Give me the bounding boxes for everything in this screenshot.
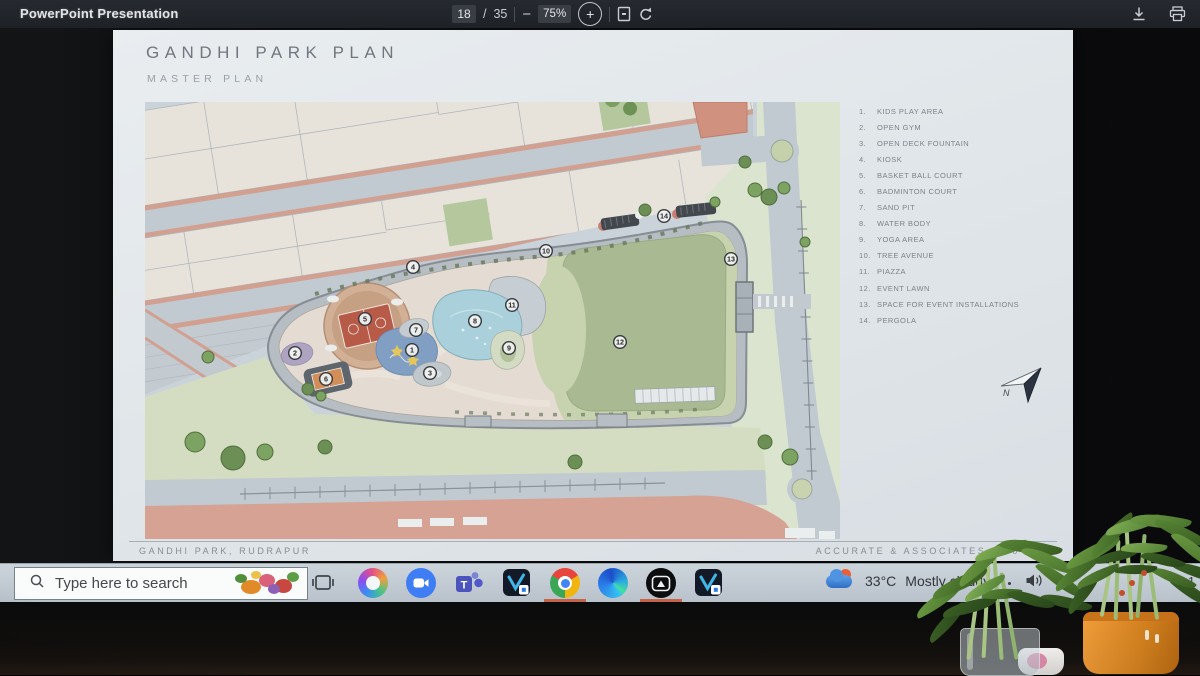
- taskbar-app-capture[interactable]: [637, 568, 685, 598]
- legend-item-4: 4.KIOSK: [859, 151, 1019, 167]
- stem-node: [1119, 590, 1125, 596]
- toolbar-divider: [609, 7, 610, 22]
- taskbar-app-pinned-dev-2[interactable]: [685, 568, 733, 598]
- capture-app-icon: [646, 568, 676, 598]
- legend-label: SAND PIT: [877, 203, 915, 212]
- legend-number: 5.: [859, 171, 877, 180]
- photo-of-monitor: { "viewer_toolbar": { "title": "PowerPoi…: [0, 0, 1200, 675]
- plan-marker-number: 3: [428, 369, 432, 378]
- legend-label: TREE AVENUE: [877, 251, 934, 260]
- plan-marker-number: 12: [616, 338, 624, 347]
- plan-marker-number: 4: [411, 263, 415, 272]
- legend-label: KIOSK: [877, 155, 902, 164]
- search-highlight-flowers[interactable]: [235, 570, 305, 597]
- legend-number: 2.: [859, 123, 877, 132]
- legend-label: YOGA AREA: [877, 235, 924, 244]
- stem-node: [1141, 570, 1147, 576]
- pinned-apps: T: [349, 568, 733, 598]
- plan-marker-number: 7: [414, 326, 418, 335]
- legend-number: 3.: [859, 139, 877, 148]
- page-number-field[interactable]: 18: [452, 5, 476, 23]
- copilot-icon: [358, 568, 388, 598]
- legend-item-13: 13.SPACE FOR EVENT INSTALLATIONS: [859, 296, 1019, 312]
- legend-label: PERGOLA: [877, 316, 916, 325]
- capture-active-indicator: [640, 599, 682, 602]
- taskbar-app-pinned-dev-1[interactable]: [493, 568, 541, 598]
- legend-number: 7.: [859, 203, 877, 212]
- orange-pot: [1083, 612, 1179, 674]
- legend-item-7: 7.SAND PIT: [859, 200, 1019, 216]
- legend-number: 12.: [859, 284, 877, 293]
- chrome-active-indicator: [544, 599, 586, 602]
- plan-marker-number: 13: [727, 255, 735, 264]
- slide-title: GANDHI PARK PLAN: [146, 43, 399, 63]
- stem-node: [1129, 580, 1135, 586]
- legend-number: 10.: [859, 251, 877, 260]
- taskbar-app-copilot[interactable]: [349, 568, 397, 598]
- plan-marker-number: 5: [363, 315, 367, 324]
- zoom-in-button[interactable]: +: [578, 2, 602, 26]
- legend-number: 4.: [859, 155, 877, 164]
- legend-item-12: 12.EVENT LAWN: [859, 280, 1019, 296]
- toolbar-divider: [514, 7, 515, 22]
- chrome-icon: [550, 568, 580, 598]
- plan-marker-number: 14: [660, 212, 668, 221]
- plan-marker-number: 9: [507, 344, 511, 353]
- zoom-level[interactable]: 75%: [538, 5, 571, 23]
- fit-page-icon[interactable]: [617, 6, 631, 22]
- plan-marker-number: 1: [410, 346, 414, 355]
- north-label: N: [1003, 388, 1010, 398]
- legend-label: KIDS PLAY AREA: [877, 107, 943, 116]
- pinned-dev-app-icon: [502, 568, 532, 598]
- legend-number: 1.: [859, 107, 877, 116]
- legend-number: 9.: [859, 235, 877, 244]
- slide-page-18: GANDHI PARK PLAN MASTER PLAN: [113, 30, 1073, 561]
- legend-number: 13.: [859, 300, 877, 309]
- rotate-icon[interactable]: [638, 6, 654, 22]
- legend-item-10: 10.TREE AVENUE: [859, 248, 1019, 264]
- north-arrow: N: [997, 362, 1047, 408]
- legend-item-11: 11.PIAZZA: [859, 264, 1019, 280]
- park-plan-map: 1234567891011121314: [145, 102, 840, 539]
- legend-item-8: 8.WATER BODY: [859, 216, 1019, 232]
- plan-marker-number: 2: [293, 349, 297, 358]
- legend-number: 14.: [859, 316, 877, 325]
- legend-label: OPEN DECK FOUNTAIN: [877, 139, 969, 148]
- edge-icon: [598, 568, 628, 598]
- pinned-dev-app-icon: [694, 568, 724, 598]
- legend-label: OPEN GYM: [877, 123, 921, 132]
- task-view-button[interactable]: [312, 573, 334, 593]
- legend-label: BADMINTON COURT: [877, 187, 957, 196]
- zoom-out-button[interactable]: −: [522, 7, 531, 22]
- search-input[interactable]: Type here to search: [14, 567, 308, 600]
- legend-number: 11.: [859, 267, 877, 276]
- search-placeholder: Type here to search: [55, 575, 188, 592]
- document-title: PowerPoint Presentation: [20, 6, 178, 21]
- taskbar-app-chrome[interactable]: [541, 568, 589, 598]
- legend-item-5: 5.BASKET BALL COURT: [859, 167, 1019, 183]
- toolbar-right-actions: [1131, 0, 1200, 28]
- legend-item-3: 3.OPEN DECK FOUNTAIN: [859, 135, 1019, 151]
- legend-item-14: 14.PERGOLA: [859, 312, 1019, 328]
- legend-label: EVENT LAWN: [877, 284, 930, 293]
- weather-temperature: 33°C: [865, 573, 896, 589]
- page-total: 35: [493, 7, 507, 21]
- legend-label: BASKET BALL COURT: [877, 171, 963, 180]
- taskbar-app-edge[interactable]: [589, 568, 637, 598]
- page-separator: /: [483, 7, 486, 21]
- legend-item-9: 9.YOGA AREA: [859, 232, 1019, 248]
- plan-marker-number: 6: [324, 375, 328, 384]
- legend-item-2: 2.OPEN GYM: [859, 119, 1019, 135]
- legend-label: WATER BODY: [877, 219, 931, 228]
- taskbar-app-zoom[interactable]: [397, 568, 445, 598]
- footer-project-name: GANDHI PARK, RUDRAPUR: [139, 546, 311, 556]
- pdf-viewer-canvas: GANDHI PARK PLAN MASTER PLAN: [0, 28, 1200, 563]
- teams-icon: T: [454, 568, 484, 598]
- legend-number: 8.: [859, 219, 877, 228]
- legend-label: PIAZZA: [877, 267, 906, 276]
- legend-number: 6.: [859, 187, 877, 196]
- plan-marker-number: 10: [542, 247, 550, 256]
- print-icon[interactable]: [1169, 6, 1186, 22]
- weather-icon: [826, 569, 856, 593]
- slide-subtitle: MASTER PLAN: [147, 73, 267, 85]
- plan-marker-number: 8: [473, 317, 477, 326]
- legend-item-1: 1.KIDS PLAY AREA: [859, 103, 1019, 119]
- legend-item-6: 6.BADMINTON COURT: [859, 183, 1019, 199]
- page-zoom-controls: 18 / 35 − 75% +: [452, 0, 654, 28]
- bamboo-plant-orange-pot: [1055, 520, 1200, 675]
- download-icon[interactable]: [1131, 6, 1147, 22]
- plan-legend: 1.KIDS PLAY AREA2.OPEN GYM3.OPEN DECK FO…: [859, 103, 1019, 328]
- search-icon: [29, 573, 45, 594]
- zoom-app-icon: [406, 568, 436, 598]
- pdf-viewer-toolbar: PowerPoint Presentation 18 / 35 − 75% +: [0, 0, 1200, 28]
- legend-label: SPACE FOR EVENT INSTALLATIONS: [877, 300, 1019, 309]
- taskbar-app-teams[interactable]: T: [445, 568, 493, 598]
- svg-text:T: T: [461, 580, 468, 592]
- plan-marker-number: 11: [508, 301, 516, 310]
